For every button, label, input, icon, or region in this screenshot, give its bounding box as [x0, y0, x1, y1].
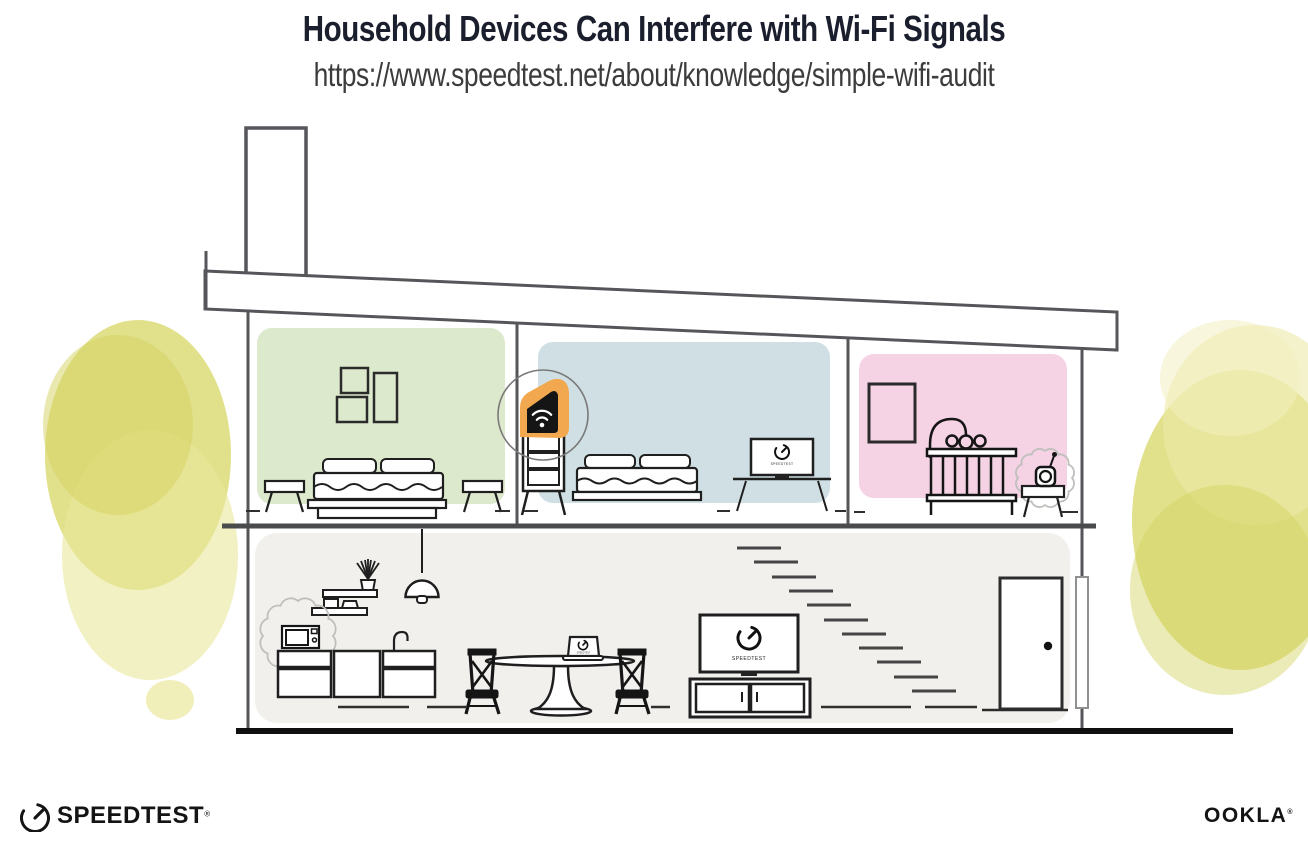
bedroom-tv-label: SPEEDTEST	[771, 462, 794, 466]
shelf-upper	[323, 590, 377, 597]
chimney	[246, 128, 306, 286]
tv-label: SPEEDTEST	[732, 656, 766, 662]
nursery-pink	[859, 354, 1074, 517]
foliage-left	[43, 320, 238, 720]
microwave	[282, 626, 319, 648]
house-illustration: SPEEDTEST	[0, 0, 1308, 861]
header: Household Devices Can Interfere with Wi-…	[0, 8, 1308, 94]
laptop-label: SPEEDTEST	[577, 653, 591, 655]
speedtest-wordmark: SPEEDTEST	[57, 802, 204, 829]
bedroom-blue: SPEEDTEST	[498, 342, 831, 515]
speedtest-gauge-icon	[20, 800, 50, 832]
tv-console	[690, 679, 810, 717]
bowl	[342, 601, 358, 608]
page-title: Household Devices Can Interfere with Wi-…	[118, 8, 1191, 50]
foliage-right	[1130, 320, 1308, 695]
laptop: SPEEDTEST	[563, 637, 603, 660]
cup	[324, 599, 338, 608]
monitor-side-table	[1022, 486, 1064, 517]
ookla-wordmark: OOKLA	[1204, 804, 1287, 827]
ground-floor: SPEEDTEST	[255, 529, 1070, 723]
downspout	[1076, 577, 1088, 708]
speedtest-logo: SPEEDTEST®	[20, 800, 210, 832]
bedroom-tv	[751, 439, 813, 475]
ookla-reg-mark: ®	[1287, 809, 1294, 816]
infographic-root: SPEEDTEST	[0, 0, 1308, 861]
speedtest-reg-mark: ®	[204, 810, 210, 819]
source-url: https://www.speedtest.net/about/knowledg…	[131, 56, 1177, 94]
bed-green	[308, 459, 446, 518]
door-knob	[1044, 642, 1052, 650]
living-room-tv: SPEEDTEST	[700, 615, 798, 676]
shelf-lower	[312, 608, 367, 615]
bedroom-green	[257, 328, 505, 518]
ookla-logo: OOKLA®	[1204, 804, 1294, 828]
